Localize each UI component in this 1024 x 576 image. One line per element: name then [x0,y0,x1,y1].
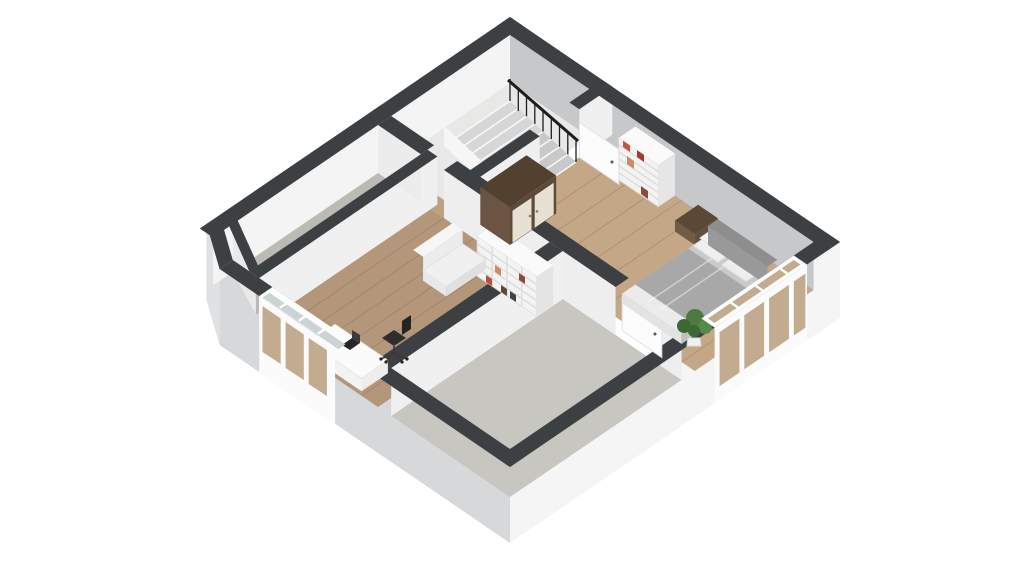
plant-pot [687,338,701,346]
floor-plan-canvas [0,0,1024,576]
chair-wheel [379,357,382,360]
door-handle [654,333,657,336]
wardrobe-handle [529,215,532,218]
wardrobe-handle [536,210,539,213]
plant-foliage [688,325,700,337]
chair-wheel [384,360,387,363]
chair-wheel [405,357,408,360]
window-pane [794,274,806,336]
chair-wheel [400,360,403,363]
door-handle [611,161,614,164]
floor-plan-3d-render [0,0,1024,576]
